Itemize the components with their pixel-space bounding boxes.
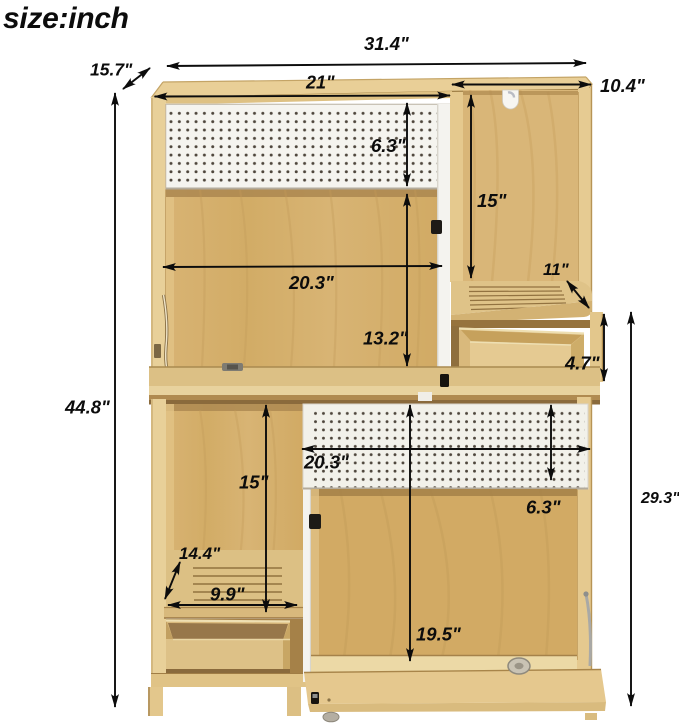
svg-text:21": 21" xyxy=(305,73,335,93)
svg-text:15.7": 15.7" xyxy=(90,60,133,80)
svg-text:size:inch: size:inch xyxy=(3,2,129,35)
svg-text:19.5": 19.5" xyxy=(416,624,461,645)
svg-text:15": 15" xyxy=(239,472,269,493)
svg-text:9.9": 9.9" xyxy=(210,584,245,605)
svg-text:20.3": 20.3" xyxy=(303,452,349,473)
svg-text:6.3": 6.3" xyxy=(526,497,561,518)
svg-text:13.2": 13.2" xyxy=(363,328,408,349)
svg-text:11": 11" xyxy=(543,260,570,279)
svg-text:15": 15" xyxy=(477,190,507,211)
svg-text:6.3": 6.3" xyxy=(371,135,406,156)
svg-text:20.3": 20.3" xyxy=(288,272,334,293)
svg-text:4.7": 4.7" xyxy=(564,353,600,374)
svg-text:14.4": 14.4" xyxy=(179,544,221,563)
svg-text:29.3": 29.3" xyxy=(640,490,679,507)
svg-text:10.4": 10.4" xyxy=(600,75,645,96)
svg-text:44.8": 44.8" xyxy=(64,397,110,418)
svg-text:31.4": 31.4" xyxy=(364,33,409,54)
